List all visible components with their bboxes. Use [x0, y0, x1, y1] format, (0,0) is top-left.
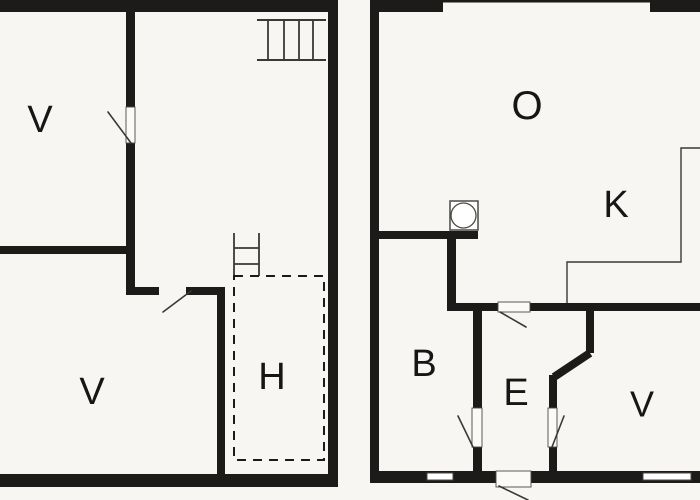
floor-plan-stage: VVHOKBEV — [0, 0, 700, 500]
door-leaf-exterior — [496, 471, 531, 487]
left-plan-right-wall — [328, 0, 338, 487]
wall-upper-v-divider-bottom — [126, 143, 135, 289]
left-plan-bottom-wall — [0, 474, 338, 487]
right-plan-top-window-line — [443, 0, 650, 3]
window-bottom-right — [643, 473, 691, 480]
room-label-v-lower: V — [79, 371, 105, 413]
wall-e-v-stub — [549, 447, 557, 472]
wall-upper-v-divider-top — [126, 12, 135, 107]
left-plan-top-wall — [0, 0, 338, 12]
wall-hall-right-segment — [186, 287, 225, 295]
room-label-v-upper: V — [27, 99, 53, 141]
room-label-k: K — [603, 184, 628, 226]
room-label-v: V — [630, 384, 654, 425]
floor-plan-svg: VVHOKBEV — [0, 0, 700, 500]
wall-hall-left-segment — [126, 287, 159, 295]
right-plan-left-wall — [370, 12, 379, 482]
stove-symbol — [450, 201, 478, 230]
room-label-o: O — [511, 84, 542, 128]
wall-o-b-divider — [379, 231, 478, 239]
door-opening-b-e — [472, 408, 482, 447]
room-label-h: H — [258, 356, 285, 398]
wall-b-e-stub — [473, 447, 482, 472]
door-opening-o-e — [498, 302, 530, 312]
wall-e-v-mid — [549, 375, 557, 409]
door-opening-e-v — [548, 408, 557, 447]
wall-e-v-upper — [586, 311, 594, 353]
wall-b-right-upper — [447, 239, 456, 311]
room-label-e: E — [503, 372, 528, 414]
wall-hallway-top-right — [530, 303, 700, 311]
wall-b-e-divider — [473, 311, 482, 408]
wall-lower-v-right — [217, 295, 225, 474]
wall-v-v-divider — [0, 246, 135, 254]
window-bottom-left — [427, 473, 453, 480]
right-plan-top-wall-left — [370, 0, 443, 12]
room-label-b: B — [411, 343, 436, 385]
wall-hallway-top-left — [447, 303, 498, 311]
right-plan-top-wall-right — [650, 0, 700, 12]
